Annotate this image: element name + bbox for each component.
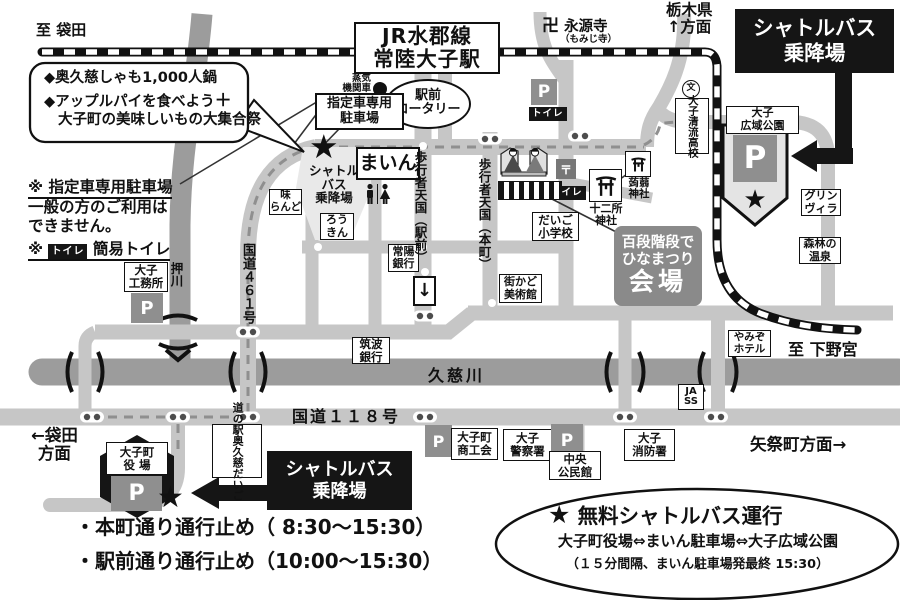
post-office-icon: 〒 [556,159,576,179]
town-hall-label-box: 大子町役 場 [106,442,168,475]
komusho-parking-icon: P [131,293,163,323]
juniso-torii-box [589,169,622,202]
manji-icon: 卍 [542,16,559,36]
station-parking-icon: P [531,79,557,105]
shuttle-stop-sign-top: シャトルバス乗降場 [735,9,894,73]
park-star: ★ [739,186,771,215]
juniso-shrine-label: 十二所 神社 [583,203,629,227]
town-hall-parking-icon: P [111,476,162,511]
police-box: 大子警察署 [503,429,552,461]
roukin-box: ろうきん [320,213,354,240]
pedestrian-zone-honcho: 歩行者天国（本町） [477,158,491,293]
free-shuttle-star-icon: ★ [548,500,570,529]
shuttle-stop-sign-bottom: シャトルバス乗降場 [267,451,412,510]
elementary-school-box: だいご小学校 [532,212,579,241]
town-hall-star: ★ [157,483,184,513]
hinamatsuri-venue-box: 百段階段で ひなまつり 会場 [614,226,702,306]
yamatsuri-direction: 矢祭町方面→ [750,436,846,454]
one-way-box: ↓ [413,276,436,306]
shoko-parking-icon: P [425,425,452,457]
fukuroda-direction-sw: ←袋田 方面 [31,427,78,463]
ajirando-box: 味らんど [269,189,302,215]
note-reserved-2: 一般の方のご利用は [28,199,168,216]
route-461-label: 国道４６１号 [240,243,255,324]
main-hall-box: まいん [356,147,420,180]
route-118-label: 国道１１８号 [292,408,400,425]
community-center-box: 中央公民館 [549,451,601,480]
seiryu-highschool-box: 大子清流高校 [675,98,709,154]
free-shuttle-frequency: （１５分間隔、まいん駐車場発最終 15:30） [525,558,870,572]
eigenji-temple-label: 卍 永源寺 [542,17,608,36]
tsukuba-bank-box: 筑波銀行 [352,337,390,364]
note-reserved-3: できません。 [28,218,121,235]
closure-note-1: ・本町通り通行止め（ 8:30～15:30） [75,517,435,539]
reserved-parking-box: 指定車専用駐車場 [315,93,404,130]
torii-icon [630,156,647,173]
free-shuttle-route: 大子町役場⇔まいん駐車場⇔大子広域公園 [505,533,891,549]
cross-icon: ＋ [215,91,232,111]
michinoeki-box: 道の駅奥久慈だいご [212,424,262,478]
pedestrian-zone-ekimae: 歩行者天国（駅前） [413,151,427,281]
station-box: JR水郡線常陸大子駅 [354,22,500,74]
eigenji-sub-label: （もみじ寺） [560,35,617,45]
greenvilla-box: グリンヴィラ [801,189,841,216]
park-parking-p: P [733,138,777,178]
note-reserved-1: ※ 指定車専用駐車場 [28,179,172,196]
machikado-museum-box: 街かど美術館 [499,274,542,303]
to-shimonomiya-label: 至 下野宮 [788,341,858,358]
bubble-line2: ◆アップルパイを食べよう＋ [44,92,232,111]
konnyaku-torii-box [625,151,651,177]
tochigi-direction: 栃木県 ↑方面 [666,2,713,35]
free-shuttle-title: ★ 無料シャトルバス運行 [548,501,783,528]
oshikawa-label: 押川 [169,262,183,287]
shoko-box: 大子町商工会 [451,428,498,460]
shuttle-stop-star-center: ★ [309,130,339,163]
hundred-steps-stairs [498,181,562,200]
ja-ss-box: JASS [678,384,704,410]
komusho-box: 大子工務所 [124,262,168,292]
bubble-line3: 大子町の美味しいもの大集合祭 [58,113,261,129]
toilet-badge-note: トイレ [48,244,87,259]
park-label-box: 大子広域公園 [726,106,799,134]
bubble-line1: ◆奥久慈しゃも1,000人鍋 [44,71,217,87]
torii-icon [594,174,618,198]
konnyaku-shrine-label: 蒟蒻 神社 [621,178,657,201]
festival-map: 至 袋田 JR水郡線常陸大子駅 卍 永源寺 （もみじ寺） 栃木県 ↑方面 シャト… [0,0,900,600]
steam-loco-label: 蒸気 機関車 [331,74,371,95]
kujigawa-label: 久慈川 [428,367,485,384]
yamizo-hotel-box: やみぞホテル [728,330,771,357]
to-fukuroda-label: 至 袋田 [36,22,86,38]
fire-station-box: 大子消防署 [624,429,675,461]
closure-note-2: ・駅前通り通行止め（10:00～15:30） [75,551,442,573]
note-toilet: ※ トイレ 簡易トイレ [28,241,170,258]
shinrin-onsen-box: 森林の温泉 [799,237,841,264]
toilet-badge-station: トイレ [529,107,567,121]
